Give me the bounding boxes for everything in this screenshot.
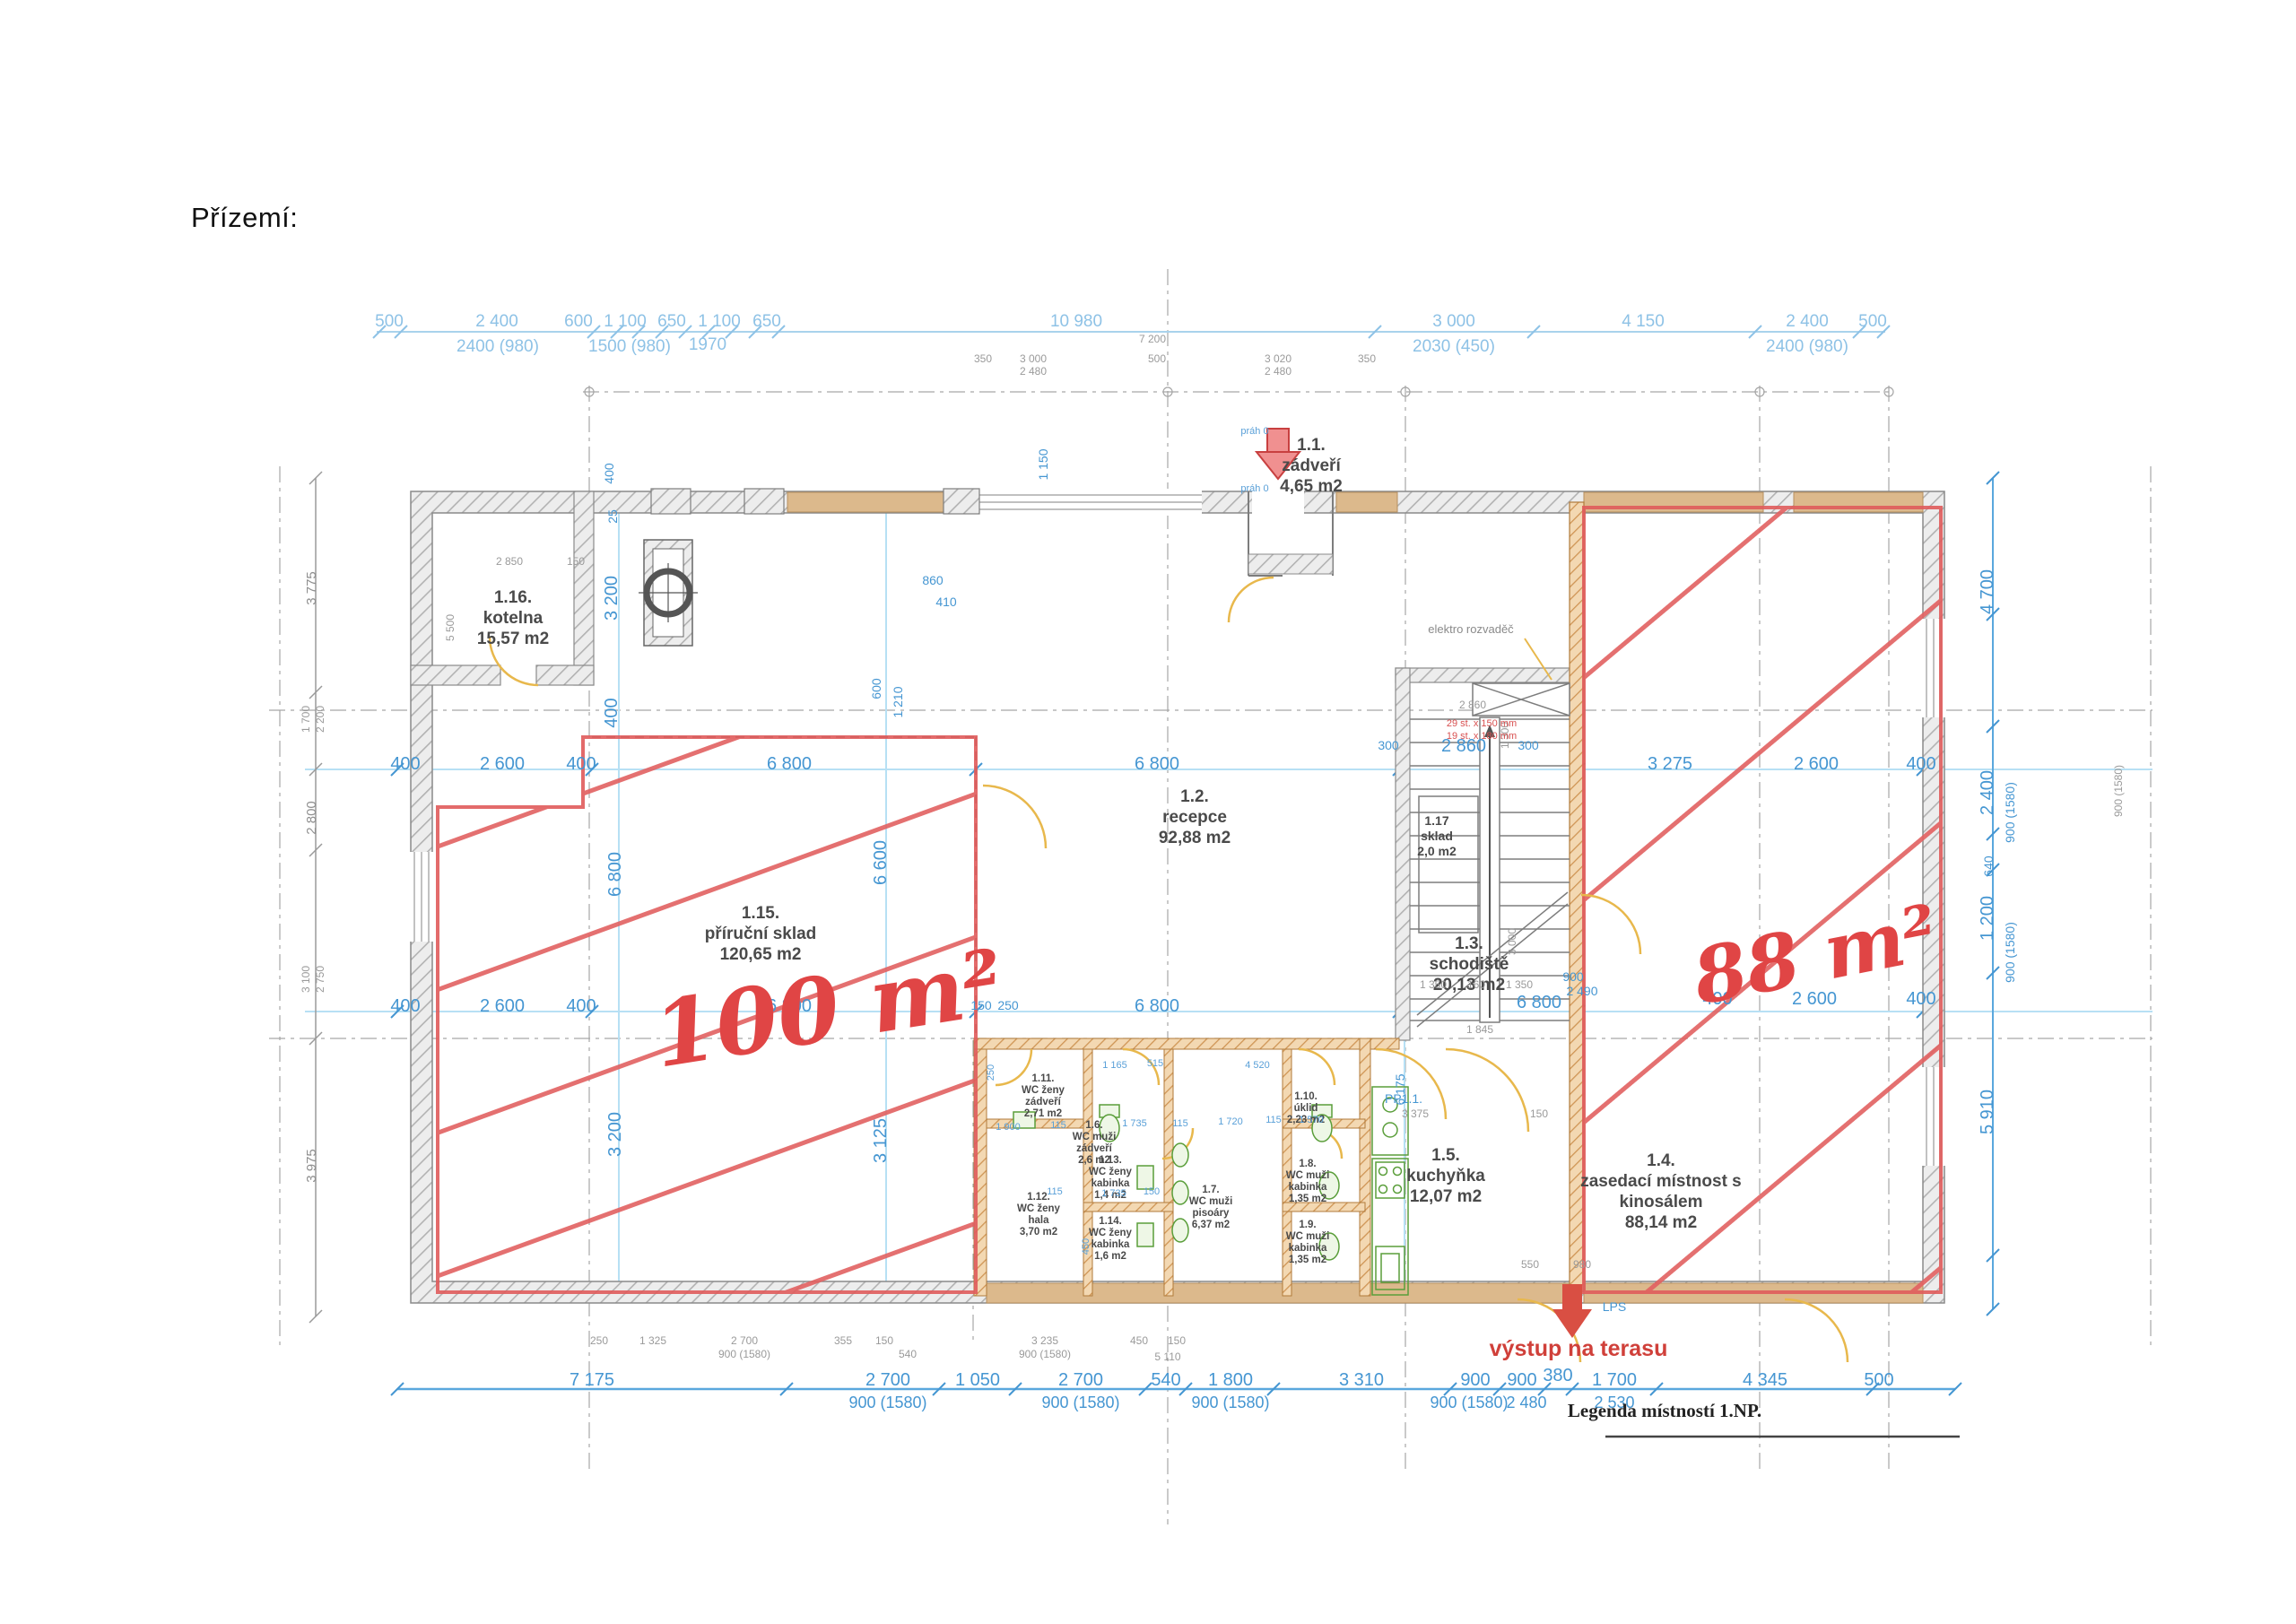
dimension-label: 2 480	[1020, 365, 1047, 378]
dimension-label: 2 480	[1506, 1394, 1546, 1411]
dimension-label: 900	[1562, 969, 1584, 984]
dimension-label: 2 600	[1794, 754, 1839, 774]
dimension-label: 900 (1580)	[2003, 782, 2017, 843]
dimension-label: 2 400	[1786, 312, 1829, 331]
dimension-label: 300	[1378, 738, 1399, 752]
dimension-label: 2030 (450)	[1413, 337, 1495, 356]
dimension-label: PP1.1.	[1385, 1091, 1422, 1106]
dimension-label: 380	[1543, 1366, 1572, 1385]
dimension-label: 1 210	[891, 686, 905, 717]
dimension-label: 1 800	[1208, 1370, 1253, 1390]
dimension-label: 2 200	[314, 706, 326, 733]
dimension-label: 3 000	[1432, 312, 1475, 331]
dimension-label: 2 850	[496, 555, 523, 568]
dimension-label: 1 325	[639, 1334, 666, 1347]
chimney	[639, 540, 698, 646]
dimension-label: 150	[1168, 1334, 1186, 1347]
room-label-recepce: 1.2.recepce92,88 m2	[1159, 787, 1231, 847]
dimension-label: 250	[986, 1064, 996, 1081]
dimension-label: 3 000	[1506, 928, 1518, 955]
dimension-label: 1 570	[1299, 1115, 1324, 1125]
dimension-label: 2 750	[314, 966, 326, 993]
dimension-label: 6 800	[767, 754, 812, 774]
dimension-label: 400	[1906, 754, 1935, 774]
dimension-label: 900 (1580)	[2003, 922, 2017, 983]
dimension-label: 900	[1460, 1370, 1490, 1390]
dimension-label: 550	[1521, 1258, 1539, 1271]
threshold-label-top: práh 0	[1240, 426, 1268, 437]
dimension-label: 1 735	[1101, 1188, 1126, 1199]
dimension-label: 2 400	[1978, 770, 1997, 815]
dimension-label: 2 400	[475, 312, 518, 331]
dimension-label: 355	[834, 1334, 852, 1347]
dimension-label: 900 (1580)	[1191, 1394, 1269, 1411]
dimension-label: 2400 (980)	[1766, 337, 1848, 356]
dimension-label: 3 100	[300, 966, 312, 993]
dimension-label: 450	[1130, 1334, 1148, 1347]
dimension-label: 350	[1358, 352, 1376, 365]
dimension-label: 1 900	[996, 1122, 1021, 1133]
dimension-label: 640	[1981, 855, 1996, 877]
dimension-label: 2 600	[480, 754, 525, 774]
dimension-label: 860	[922, 573, 944, 587]
dimension-label: 250	[590, 1334, 608, 1347]
dimension-label: 5 910	[1978, 1090, 1997, 1134]
dimension-label: 2400 (980)	[457, 337, 539, 356]
dimension-label: 400	[1906, 989, 1935, 1009]
dimension-label: 1 720	[1218, 1116, 1243, 1127]
dimension-label: 3 975	[304, 1149, 319, 1183]
dimension-label: 2 700	[731, 1334, 758, 1347]
dimension-label: 300	[1518, 738, 1539, 752]
dimension-label: 3 375	[1402, 1107, 1429, 1120]
dimension-label: 2 860	[1459, 699, 1486, 711]
dimension-label: 1 700	[300, 706, 312, 733]
dimension-label: 600	[564, 312, 593, 331]
dimension-label: 3 775	[304, 571, 319, 605]
dimension-label: 150	[1144, 1186, 1160, 1197]
dimension-label: 115	[1172, 1118, 1188, 1129]
dimension-label: 6 600	[871, 840, 891, 885]
dimension-label: 500	[1148, 352, 1166, 365]
threshold-label-bottom: práh 0	[1240, 483, 1268, 494]
dimension-label: 5 500	[444, 614, 457, 641]
dimension-label: 400	[566, 996, 596, 1016]
dimension-label: 4 700	[1978, 569, 1997, 614]
dimension-label: 160	[1467, 978, 1485, 991]
dimension-label: 7 200	[1139, 333, 1166, 345]
dimension-label: 115	[1265, 1115, 1282, 1125]
room-label-wc-muzi-pisoary: 1.7.WC mužipisoáry6,37 m2	[1189, 1185, 1233, 1230]
legend-title: Legenda místností 1.NP.	[1568, 1400, 1761, 1421]
room-label-kuchynka: 1.5.kuchyňka12,07 m2	[1406, 1146, 1485, 1206]
dimension-label: 1 165	[1102, 1060, 1127, 1071]
dimension-label: 25	[605, 509, 620, 524]
dimension-label: 4 345	[1743, 1370, 1787, 1390]
dimension-label: 650	[657, 312, 686, 331]
dimension-label: 2 800	[304, 801, 319, 835]
dimension-label: 400	[390, 754, 420, 774]
dimension-label: 900 (1580)	[1041, 1394, 1119, 1411]
dimension-label: 29 st. x 150 mm	[1447, 718, 1517, 729]
dimension-label: 400	[602, 698, 622, 727]
lps-label: LPS	[1603, 1299, 1626, 1314]
dimension-label: 515	[1147, 1058, 1163, 1069]
dimension-label: 900 (1580)	[848, 1394, 926, 1411]
dimension-label: 410	[935, 595, 957, 609]
dimension-label: 1 050	[955, 1370, 1000, 1390]
dimension-label: 3 200	[605, 1112, 625, 1157]
dimension-label: 3 310	[1339, 1370, 1384, 1390]
dimension-label: 4 520	[1245, 1060, 1270, 1071]
dimension-label: 3 235	[1031, 1334, 1058, 1347]
dimension-label: 2 700	[865, 1370, 910, 1390]
dimension-label: 6 800	[1135, 754, 1179, 774]
dimension-label: 1500 (980)	[588, 337, 671, 356]
terrace-exit-label: výstup na terasu	[1490, 1336, 1668, 1361]
dimension-label: 3 200	[602, 576, 622, 621]
dimension-label: 1 100	[604, 312, 647, 331]
dimension-label: 1 700	[1592, 1370, 1637, 1390]
dimension-label: 2 490	[1566, 984, 1597, 998]
dimension-label: 6 800	[1135, 996, 1179, 1016]
dimension-label: 900 (1580)	[2112, 765, 2125, 817]
dimension-label: 540	[899, 1348, 917, 1360]
dimension-label: 10 980	[1050, 312, 1102, 331]
dimension-label: 1 150	[1036, 448, 1050, 480]
dimension-label: 400	[602, 463, 616, 484]
dimension-label: 1 845	[1466, 1023, 1493, 1036]
dimension-label: 400	[566, 754, 596, 774]
dimension-label: 1 200	[1978, 896, 1997, 941]
floorplan-page: Přízemí:	[0, 0, 2296, 1624]
electro-cabinet	[1473, 683, 1570, 716]
electro-label: elektro rozvaděč	[1428, 622, 1514, 636]
dimension-label: 115	[1047, 1186, 1063, 1197]
dimension-label: 500	[375, 312, 404, 331]
dimension-label: 115	[1050, 1120, 1066, 1131]
dimension-label: 900 (1580)	[1430, 1394, 1508, 1411]
floorplan-drawing: 1.16.kotelna15,57 m2 1.15.příruční sklad…	[0, 0, 2296, 1624]
room-label-wc-zeny-hala: 1.12.WC ženyhala3,70 m2	[1017, 1192, 1061, 1238]
room-label-kotelna: 1.16.kotelna15,57 m2	[477, 588, 549, 648]
room-label-wc-zeny-zadveri: 1.11.WC ženyzádveří2,71 m2	[1022, 1073, 1065, 1119]
dimension-label: 980	[1573, 1258, 1591, 1271]
dimension-label: 150	[1530, 1107, 1548, 1120]
dimension-label: 2 480	[1265, 365, 1291, 378]
dimension-label: 1 350	[1506, 978, 1533, 991]
dimension-label: 3 000	[1020, 352, 1047, 365]
room-label-wc-muzi-kabinka-1: 1.8.WC mužikabinka1,35 m2	[1286, 1159, 1330, 1204]
dimension-label: 4 150	[1622, 312, 1665, 331]
dimension-label: 1970	[689, 335, 726, 354]
dimension-label: 6 800	[605, 852, 625, 897]
dimension-label: 1 350	[1420, 978, 1447, 991]
dimension-label: 6 800	[1517, 993, 1561, 1012]
dimension-label: 1 100	[698, 312, 741, 331]
dimension-label: 350	[974, 352, 992, 365]
dimension-label: 19 st. x 180 mm	[1447, 731, 1517, 742]
dimension-label: 2 600	[480, 996, 525, 1016]
dimension-label: 3 020	[1265, 352, 1291, 365]
dimension-label: 150	[875, 1334, 893, 1347]
dimension-label: 400	[390, 996, 420, 1016]
dimension-label: 450	[1081, 1238, 1091, 1255]
dimension-label: 2 700	[1058, 1370, 1103, 1390]
dimension-label: 3 275	[1648, 754, 1692, 774]
dimension-label: 500	[1864, 1370, 1893, 1390]
dimension-label: 650	[752, 312, 781, 331]
dimension-label: 5 110	[1154, 1350, 1180, 1363]
dimension-label: 1 735	[1122, 1118, 1147, 1129]
dimension-label: 900 (1580)	[1019, 1348, 1071, 1360]
dimension-label: 900 (1580)	[718, 1348, 770, 1360]
dimension-label: 900	[1507, 1370, 1536, 1390]
room-label-wc-muzi-kabinka-2: 1.9.WC mužikabinka1,35 m2	[1286, 1220, 1330, 1265]
dimension-label: 7 175	[570, 1370, 614, 1390]
dimension-label: 3 125	[871, 1118, 891, 1163]
dimension-label: 600	[869, 678, 883, 699]
dimension-label: 150	[567, 555, 585, 568]
dimension-label: 540	[1151, 1370, 1180, 1390]
dimension-label: 500	[1858, 312, 1887, 331]
room-label-wc-zeny-kabinka-2: 1.14.WC ženykabinka1,6 m2	[1089, 1216, 1133, 1262]
